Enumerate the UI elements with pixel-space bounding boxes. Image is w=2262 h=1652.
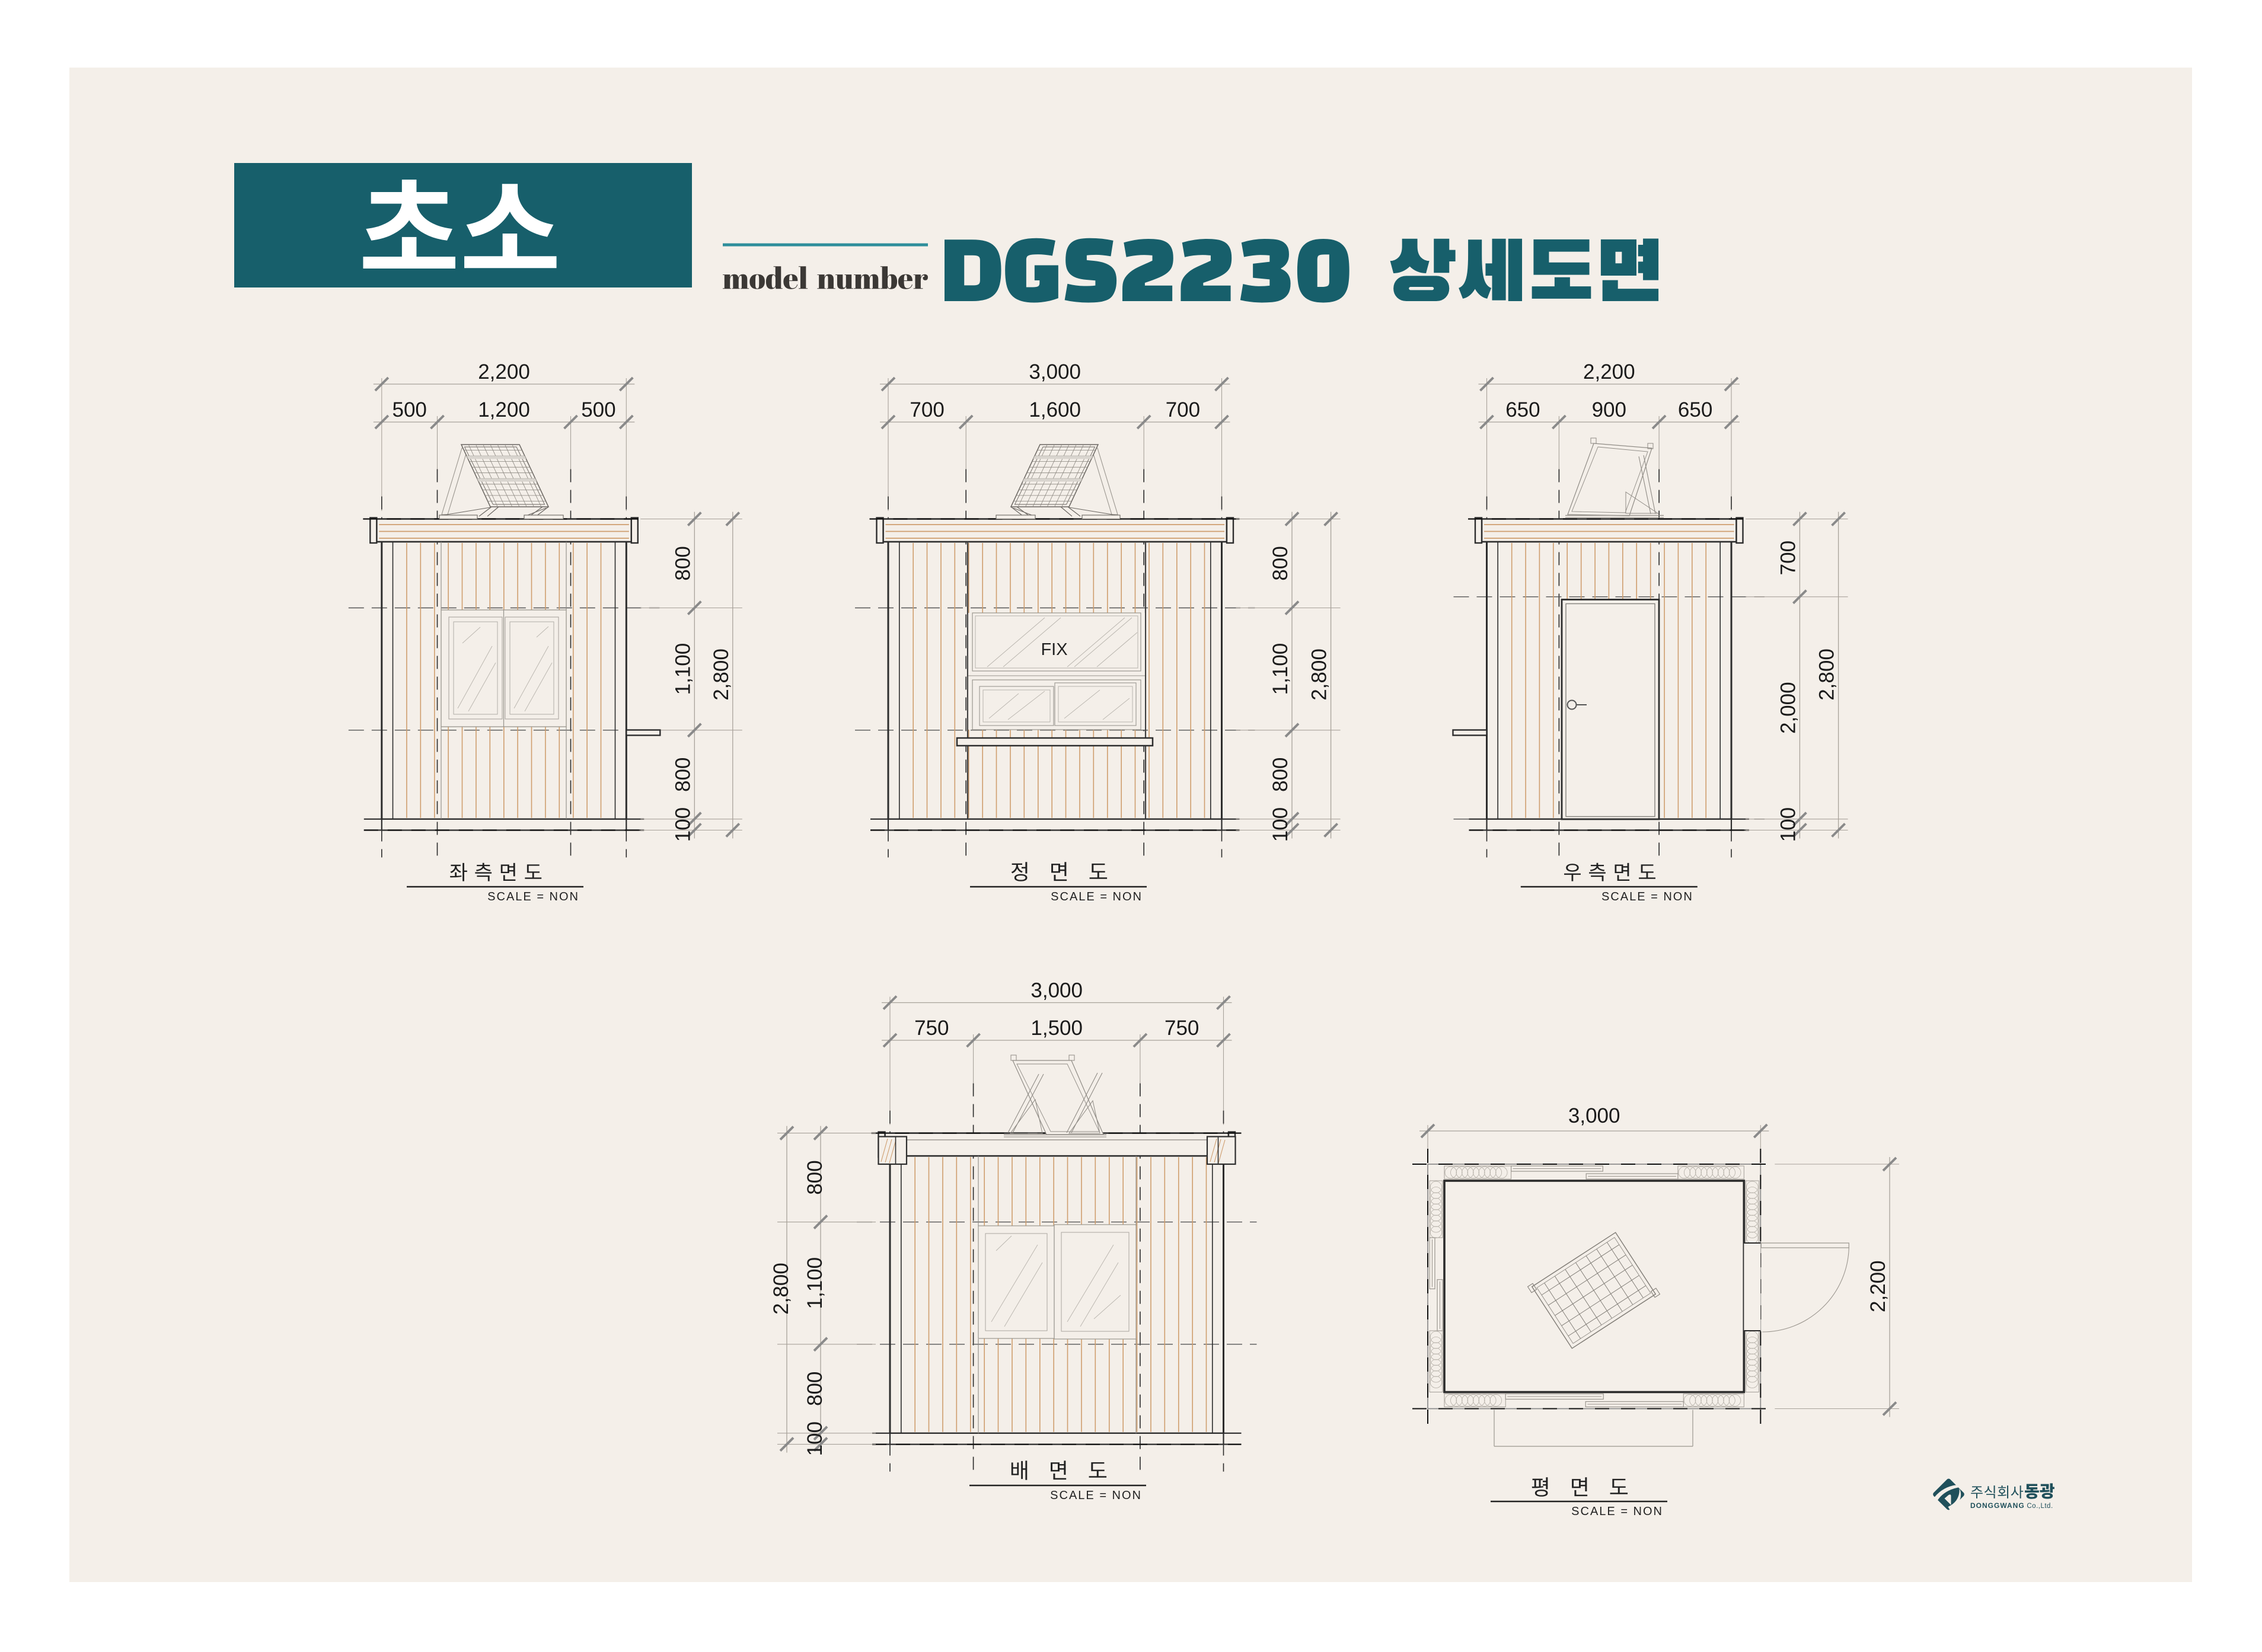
svg-text:700: 700	[910, 398, 944, 421]
svg-text:1,100: 1,100	[671, 643, 694, 695]
svg-text:2,200: 2,200	[478, 360, 530, 384]
svg-text:650: 650	[1678, 398, 1712, 421]
svg-text:1,100: 1,100	[803, 1257, 827, 1309]
svg-text:100: 100	[1776, 807, 1800, 842]
svg-text:1,200: 1,200	[478, 398, 530, 421]
svg-text:2,800: 2,800	[1816, 648, 1839, 701]
svg-text:500: 500	[581, 398, 615, 421]
svg-text:800: 800	[671, 758, 694, 792]
svg-text:800: 800	[1269, 758, 1292, 792]
svg-text:800: 800	[1269, 546, 1292, 580]
svg-text:100: 100	[1269, 807, 1292, 842]
svg-text:700: 700	[1776, 541, 1800, 575]
svg-text:800: 800	[671, 546, 694, 580]
svg-text:SCALE = NON: SCALE = NON	[1571, 1505, 1663, 1518]
svg-text:SCALE = NON: SCALE = NON	[487, 890, 579, 903]
svg-text:2,200: 2,200	[1583, 360, 1635, 384]
svg-text:1,500: 1,500	[1030, 1017, 1083, 1040]
svg-text:800: 800	[803, 1372, 827, 1406]
svg-text:800: 800	[803, 1160, 827, 1194]
svg-text:2,800: 2,800	[770, 1263, 793, 1315]
svg-text:1,100: 1,100	[1269, 643, 1292, 695]
svg-text:3,000: 3,000	[1029, 360, 1081, 384]
svg-text:DONGGWANG Co.,Ltd.: DONGGWANG Co.,Ltd.	[1970, 1501, 2053, 1510]
svg-text:SCALE = NON: SCALE = NON	[1601, 890, 1693, 903]
svg-text:700: 700	[1166, 398, 1200, 421]
svg-text:2,800: 2,800	[1308, 648, 1331, 701]
svg-text:SCALE = NON: SCALE = NON	[1051, 890, 1143, 903]
svg-text:900: 900	[1592, 398, 1626, 421]
svg-text:FIX: FIX	[1041, 640, 1067, 659]
svg-text:2,800: 2,800	[710, 648, 733, 701]
svg-text:1,600: 1,600	[1029, 398, 1081, 421]
svg-text:2,000: 2,000	[1776, 682, 1800, 734]
svg-text:SCALE = NON: SCALE = NON	[1050, 1489, 1142, 1502]
svg-text:650: 650	[1505, 398, 1540, 421]
svg-text:100: 100	[803, 1421, 827, 1456]
svg-text:100: 100	[671, 807, 694, 842]
svg-text:2,200: 2,200	[1867, 1260, 1890, 1312]
svg-text:3,000: 3,000	[1030, 979, 1083, 1002]
svg-text:750: 750	[914, 1017, 949, 1040]
svg-text:3,000: 3,000	[1568, 1104, 1620, 1127]
svg-text:750: 750	[1165, 1017, 1199, 1040]
svg-text:500: 500	[392, 398, 426, 421]
